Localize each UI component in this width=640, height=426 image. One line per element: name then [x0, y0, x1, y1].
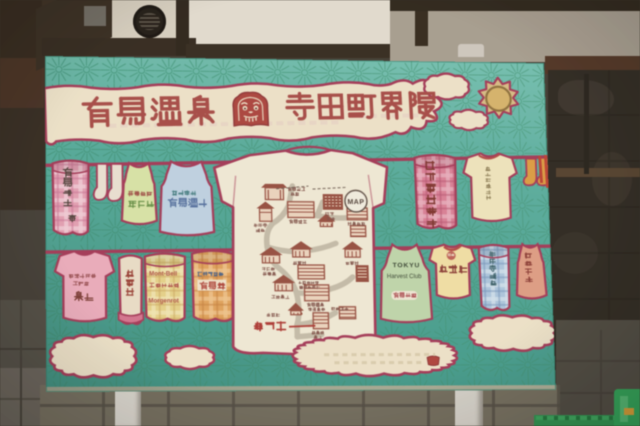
svg-text:Harvest Club: Harvest Club [387, 274, 422, 280]
svg-text:Mont-Bell: Mont-Bell [149, 272, 177, 278]
svg-text:TOKYU: TOKYU [392, 262, 420, 269]
svg-text:Morgenrot: Morgenrot [148, 299, 179, 305]
svg-text:MAP: MAP [347, 199, 364, 206]
